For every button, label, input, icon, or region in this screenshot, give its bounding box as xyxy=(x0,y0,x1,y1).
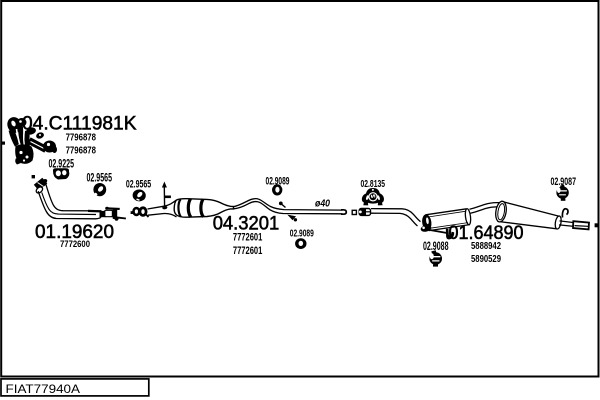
svg-text:5888942: 5888942 xyxy=(471,241,501,252)
svg-text:ø40: ø40 xyxy=(315,199,330,210)
svg-text:02.9087: 02.9087 xyxy=(551,176,577,188)
svg-text:7796878: 7796878 xyxy=(66,133,97,144)
svg-text:7772601: 7772601 xyxy=(233,245,262,257)
svg-text:FIAT77940A: FIAT77940A xyxy=(6,382,81,396)
svg-text:02.8135: 02.8135 xyxy=(361,179,386,190)
svg-text:7796878: 7796878 xyxy=(66,145,97,156)
svg-text:02.9565: 02.9565 xyxy=(126,179,151,191)
svg-text:5890529: 5890529 xyxy=(471,254,501,265)
svg-text:02.9089: 02.9089 xyxy=(266,175,290,187)
svg-text:02.9225: 02.9225 xyxy=(49,156,75,170)
svg-text:7772601: 7772601 xyxy=(233,232,262,244)
svg-text:02.9089: 02.9089 xyxy=(290,228,314,239)
svg-text:7772600: 7772600 xyxy=(60,239,90,250)
svg-text:04.C111981K: 04.C111981K xyxy=(22,113,137,134)
svg-text:02.9088: 02.9088 xyxy=(423,239,449,253)
svg-text:02.9565: 02.9565 xyxy=(87,171,113,185)
